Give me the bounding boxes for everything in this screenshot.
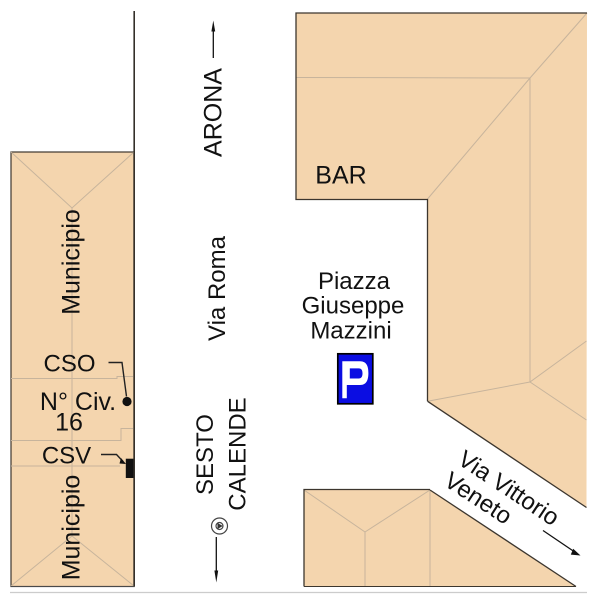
svg-text:Piazza: Piazza <box>318 268 391 295</box>
svg-text:16: 16 <box>55 409 83 437</box>
svg-text:Municipio: Municipio <box>58 209 86 315</box>
svg-text:Giuseppe: Giuseppe <box>302 293 405 320</box>
svg-text:Mazzini: Mazzini <box>310 318 391 345</box>
svg-text:ARONA: ARONA <box>200 68 228 157</box>
svg-text:CALENDE: CALENDE <box>225 397 252 510</box>
svg-text:Municipio: Municipio <box>58 475 86 581</box>
svg-text:Via Roma: Via Roma <box>204 235 231 341</box>
svg-text:CSV: CSV <box>42 443 91 470</box>
svg-text:SESTO: SESTO <box>192 414 219 495</box>
svg-text:BAR: BAR <box>315 162 366 190</box>
svg-text:CSO: CSO <box>43 351 95 378</box>
